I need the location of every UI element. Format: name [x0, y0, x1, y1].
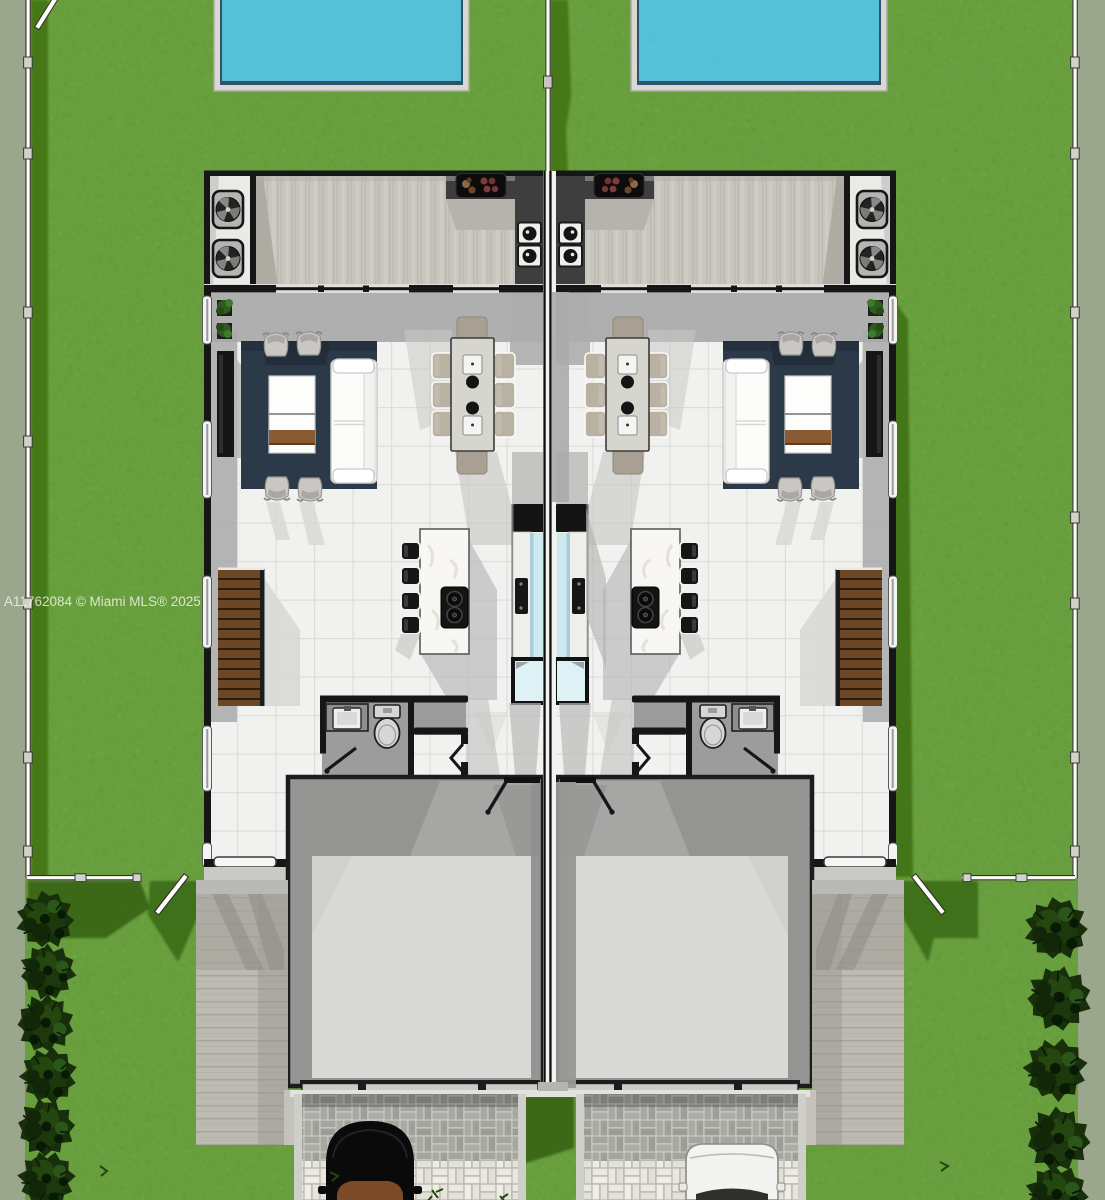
svg-text:A11762084 © Miami MLS® 2025: A11762084 © Miami MLS® 2025	[4, 594, 201, 609]
